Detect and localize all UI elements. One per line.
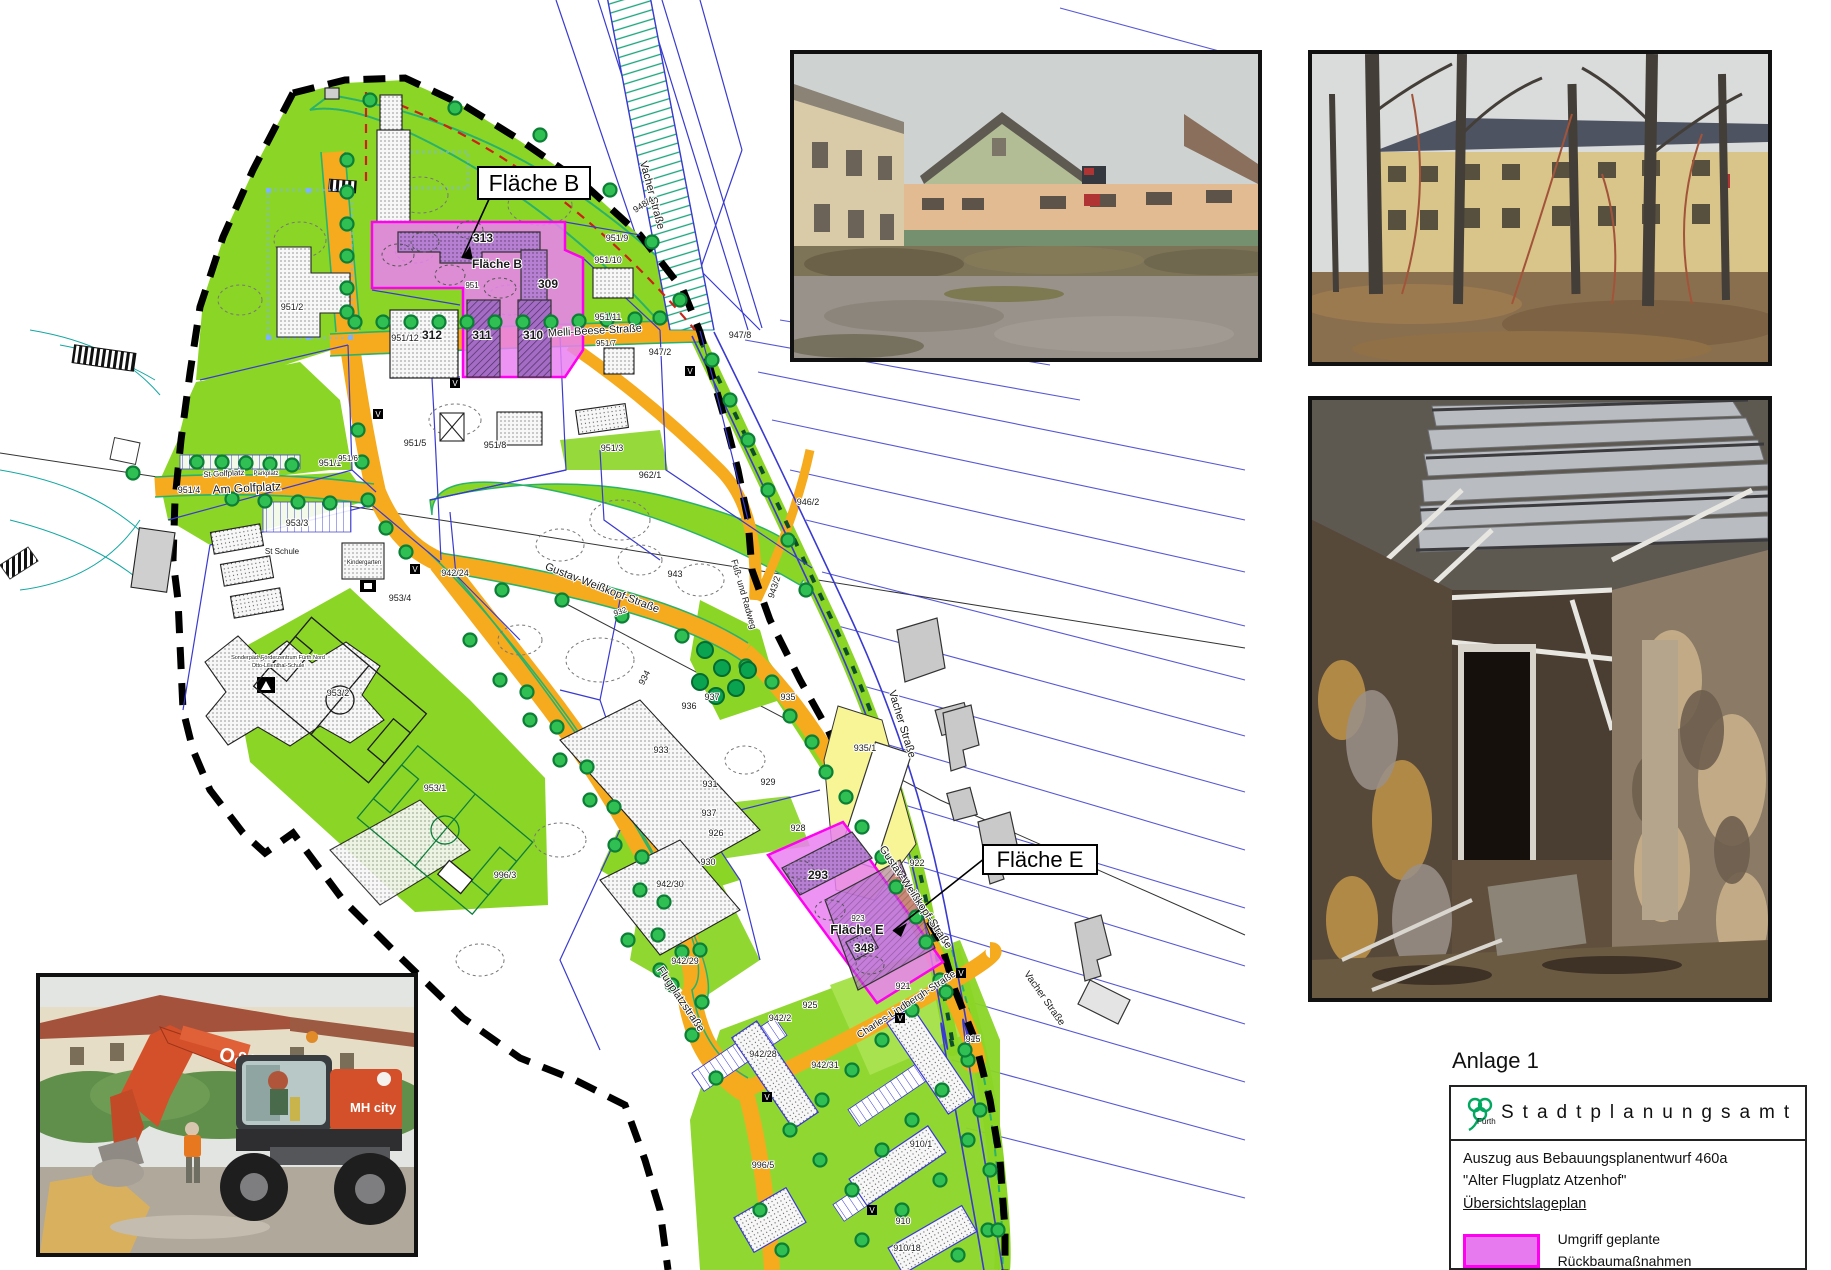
tree-icon (286, 459, 299, 472)
tree-icon (800, 584, 813, 597)
tree-icon (814, 1154, 827, 1167)
photo-excavator: O&K MH city (36, 973, 418, 1257)
tree-icon (464, 634, 477, 647)
map-label: 910 (895, 1216, 910, 1226)
tree-icon (784, 710, 797, 723)
tree-icon (816, 1094, 829, 1107)
tree-icon (364, 94, 377, 107)
map-label: 942/24 (441, 568, 469, 578)
tree-icon (324, 497, 337, 510)
anlage-label: Anlage 1 (1452, 1048, 1539, 1074)
tree-icon (652, 929, 665, 942)
tree-icon (762, 484, 775, 497)
map-label: 921 (895, 981, 910, 991)
legend-box: Fürth Stadtplanungsamt Auszug aus Bebauu… (1449, 1085, 1807, 1270)
tree-icon (876, 1034, 889, 1047)
map-label: 937 (704, 692, 719, 702)
legend-line2: "Alter Flugplatz Atzenhof" (1463, 1170, 1793, 1192)
traffic-marker-letter: V (687, 367, 693, 376)
tree-icon (992, 1224, 1005, 1237)
map-label: 951/12 (391, 333, 419, 343)
tree-icon (936, 1084, 949, 1097)
map-label: 926 (708, 828, 723, 838)
tree-icon (534, 129, 547, 142)
tree-icon (959, 1044, 972, 1057)
tree-icon (405, 316, 418, 329)
tree-icon (706, 354, 719, 367)
map-label: 312 (422, 328, 442, 342)
map-label: Fläche B (472, 257, 522, 271)
substation-symbol (440, 413, 464, 441)
tree-icon (216, 456, 229, 469)
map-label: 348 (854, 941, 874, 955)
map-label: Parkplatz (253, 471, 278, 477)
tree-icon (658, 896, 671, 909)
map-label: 933 (653, 745, 668, 755)
tree-icon (696, 996, 709, 1009)
legend-line1: Auszug aus Bebauungsplanentwurf 460a (1463, 1148, 1793, 1170)
map-label: Otto-Lilienthal-Schule (252, 663, 305, 669)
map-label: 996/3 (494, 870, 517, 880)
tree-icon (554, 754, 567, 767)
map-label: 951 (465, 281, 479, 290)
map-label: 310 (523, 328, 543, 342)
map-label: 922 (909, 858, 924, 868)
map-label: 947/2 (649, 347, 672, 357)
tree-icon (766, 676, 779, 689)
tree-icon (806, 736, 819, 749)
map-label: 937 (701, 808, 716, 818)
tree-icon (974, 1104, 987, 1117)
tree-icon (341, 282, 354, 295)
tree-icon (581, 761, 594, 774)
tree-icon (636, 851, 649, 864)
map-label: 313 (473, 231, 493, 245)
map-label: 942/31 (811, 1060, 839, 1070)
traffic-marker-letter: V (764, 1093, 770, 1102)
map-label: 311 (472, 328, 492, 342)
tree-icon (494, 674, 507, 687)
tree-icon (461, 316, 474, 329)
tree-icon (934, 1174, 947, 1187)
tree-icon (740, 662, 756, 678)
map-label: 962/1 (639, 470, 662, 480)
tree-icon (433, 316, 446, 329)
tree-icon (449, 102, 462, 115)
map-label: St Schule (265, 547, 300, 556)
photo-trees-building (1308, 50, 1772, 366)
map-label: 953/4 (389, 593, 412, 603)
tree-icon (352, 424, 365, 437)
map-label: 951/2 (281, 302, 304, 312)
tree-icon (962, 1134, 975, 1147)
map-label: 942/28 (749, 1049, 777, 1059)
tree-icon (952, 1249, 965, 1262)
tree-icon (692, 674, 708, 690)
svg-text:Fläche B: Fläche B (489, 170, 580, 196)
tree-icon (608, 801, 621, 814)
tree-icon (906, 1114, 919, 1127)
map-label: 943 (667, 569, 682, 579)
traffic-marker-letter: V (412, 565, 418, 574)
map-label: 293 (808, 868, 828, 882)
tree-icon (728, 680, 744, 696)
tree-icon (754, 1204, 767, 1217)
tree-icon (292, 496, 305, 509)
map-label: 951/7 (596, 339, 617, 348)
tree-icon (714, 660, 730, 676)
tree-icon (782, 534, 795, 547)
map-label: 953/1 (424, 783, 447, 793)
fuerth-logo-text: Fürth (1477, 1117, 1496, 1126)
map-label: 947/8 (729, 330, 752, 340)
demolition-swatch-label: Umgriff geplante Rückbaumaßnahmen (1558, 1229, 1793, 1270)
map-label: 309 (538, 277, 558, 291)
demolition-swatch (1463, 1234, 1540, 1268)
photo-interior-derelict (1308, 396, 1772, 1002)
tree-icon (191, 456, 204, 469)
tree-icon (846, 1184, 859, 1197)
tree-icon (776, 1244, 789, 1257)
traffic-marker-letter: V (958, 969, 964, 978)
map-label: 915 (965, 1034, 980, 1044)
map-label: 928 (790, 823, 805, 833)
tree-icon (496, 584, 509, 597)
tree-icon (341, 186, 354, 199)
tree-icon (521, 686, 534, 699)
map-label: Kindergarten (347, 560, 381, 566)
map-label: 930 (700, 857, 715, 867)
tree-icon (584, 794, 597, 807)
map-label: Fläche E (830, 922, 884, 937)
traffic-marker-letter: V (452, 379, 458, 388)
tree-icon (724, 394, 737, 407)
tree-icon (622, 934, 635, 947)
map-label: 942/29 (671, 956, 699, 966)
map-label: 942/2 (769, 1013, 792, 1023)
tree-icon (856, 1234, 869, 1247)
tree-icon (784, 1124, 797, 1137)
tree-icon (551, 721, 564, 734)
map-label: 951/6 (338, 454, 359, 463)
map-label: 951/5 (404, 438, 427, 448)
map-label: 925 (802, 1000, 817, 1010)
tree-icon (341, 250, 354, 263)
tree-icon (400, 546, 413, 559)
tree-icon (676, 630, 689, 643)
map-label: 946/2 (797, 497, 820, 507)
traffic-marker-letter: V (897, 1014, 903, 1023)
map-label: 951/8 (484, 440, 507, 450)
legend-header: Fürth Stadtplanungsamt (1451, 1087, 1805, 1141)
svg-text:Fläche E: Fläche E (997, 847, 1084, 872)
map-label: Sonderpäd. Förderzentrum Fürth Nord (231, 655, 325, 661)
map-label: 929 (760, 777, 775, 787)
map-label: 951/10 (594, 255, 622, 265)
tree-icon (856, 821, 869, 834)
tree-icon (694, 944, 707, 957)
tree-icon (259, 495, 272, 508)
tree-icon (127, 467, 140, 480)
tree-icon (341, 154, 354, 167)
tree-icon (362, 494, 375, 507)
tree-icon (896, 1204, 909, 1217)
tree-icon (556, 594, 569, 607)
map-label: 951/9 (606, 233, 629, 243)
legend-line3: Übersichtslageplan (1463, 1193, 1793, 1215)
map-label: 910/1 (910, 1139, 933, 1149)
map-label: 953/2 (327, 688, 350, 698)
tree-icon (524, 714, 537, 727)
map-label: 910/18 (893, 1243, 921, 1253)
tree-icon (341, 218, 354, 231)
fuerth-logo-icon: Fürth (1461, 1093, 1501, 1133)
tree-icon (876, 1144, 889, 1157)
tree-icon (517, 316, 530, 329)
traffic-marker-letter: V (869, 1206, 875, 1215)
tree-icon (697, 642, 713, 658)
tree-icon (489, 316, 502, 329)
map-label: 951/11 (595, 312, 622, 322)
tree-icon (380, 522, 393, 535)
tree-icon (377, 316, 390, 329)
tree-icon (264, 458, 277, 471)
map-label: 936 (681, 701, 696, 711)
tree-icon (820, 766, 833, 779)
tree-icon (646, 236, 659, 249)
legend-title: Stadtplanungsamt (1501, 1102, 1798, 1124)
map-label: 953/3 (286, 518, 309, 528)
map-label: 935/1 (854, 743, 877, 753)
tree-icon (341, 306, 354, 319)
tree-icon (920, 936, 933, 949)
tree-icon (604, 184, 617, 197)
traffic-marker-letter: V (375, 410, 381, 419)
map-label: 942/30 (656, 879, 684, 889)
map-label: 935 (780, 692, 795, 702)
tree-icon (984, 1164, 997, 1177)
map-label: 951/4 (178, 485, 201, 495)
tree-icon (846, 1064, 859, 1077)
map-label: 951/3 (601, 443, 624, 453)
tree-icon (710, 1072, 723, 1085)
tree-icon (654, 312, 667, 325)
plan-document: { "legend": { "anlage": "Anlage 1", "off… (0, 0, 1831, 1270)
tree-icon (634, 884, 647, 897)
tree-icon (840, 791, 853, 804)
photo-courtyard (790, 50, 1262, 362)
map-label: 996/5 (752, 1160, 775, 1170)
tree-icon (674, 294, 687, 307)
tree-icon (742, 434, 755, 447)
tree-icon (609, 839, 622, 852)
excavator-model-text: MH city (350, 1100, 397, 1115)
map-label: 931 (702, 779, 717, 789)
